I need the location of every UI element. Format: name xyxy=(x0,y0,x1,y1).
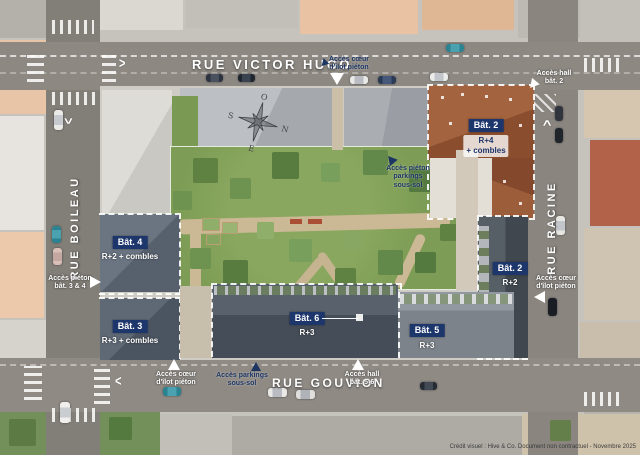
lot-boundary-dashed xyxy=(398,292,400,358)
road-hatching xyxy=(532,94,556,112)
crosswalk xyxy=(584,58,622,72)
access-marker-bottom-hall xyxy=(352,359,364,370)
access-marker-left xyxy=(90,276,101,288)
car xyxy=(60,402,70,423)
direction-arrow-east: > xyxy=(119,56,125,72)
city-block xyxy=(0,232,44,318)
existing-building-roof xyxy=(102,90,172,214)
bat6-leader-marker xyxy=(356,314,363,321)
city-block xyxy=(422,0,514,30)
car xyxy=(52,226,61,243)
bat2-east-floors: R+2 xyxy=(503,278,518,288)
access-line: Accès cœur xyxy=(156,371,196,378)
access-marker-right xyxy=(534,291,545,303)
access-line: Accès piéton xyxy=(386,165,430,172)
car xyxy=(446,44,464,52)
compass-west-label: O xyxy=(260,92,269,102)
bat6-leader-line xyxy=(322,318,358,319)
access-line: Accès parkings xyxy=(216,372,268,379)
access-line: Accès hall xyxy=(345,371,380,378)
car xyxy=(555,128,563,143)
car xyxy=(378,76,396,84)
car xyxy=(296,390,315,399)
bat4-floors: R+2 + combles xyxy=(102,252,158,262)
access-label-bottom-parking: Accès parkings sous-sol xyxy=(216,372,268,389)
bat2-north-floors: R+4 + combles xyxy=(463,135,508,157)
access-label-bottom-hall: Accès hall bât. 5-6 xyxy=(345,371,380,388)
access-label-left-pedestrian: Accès piéton bât. 3 & 4 xyxy=(48,275,92,292)
access-line: bât. 2 xyxy=(545,78,563,85)
bat3-label: Bât. 3 xyxy=(113,320,148,333)
bat4-label: Bât. 4 xyxy=(113,236,148,249)
street-name-rue-boileau: RUE BOILEAU xyxy=(69,176,81,279)
crosswalk xyxy=(52,92,96,105)
aerial-photo: > > > > xyxy=(0,0,640,455)
street-name-rue-racine: RUE RACINE xyxy=(546,181,558,274)
access-line: sous-sol xyxy=(228,380,257,387)
compass-rose: O N E S xyxy=(220,90,296,156)
car xyxy=(163,387,181,396)
floors-line: R+4 xyxy=(479,136,494,145)
bat3-floors: R+3 + combles xyxy=(102,336,158,346)
access-line: bât. 3 & 4 xyxy=(54,283,85,290)
access-line: d'îlot piéton xyxy=(156,379,195,386)
crosswalk xyxy=(52,20,94,34)
access-line: Accès cœur xyxy=(329,56,369,63)
access-line: bât. 5-6 xyxy=(350,379,375,386)
direction-arrow-north: > xyxy=(540,120,556,126)
bat5-floors: R+3 xyxy=(420,341,435,351)
car xyxy=(420,382,437,390)
crosswalk xyxy=(94,364,110,404)
bat2-east-label: Bât. 2 xyxy=(493,262,528,275)
bat6-floors: R+3 xyxy=(300,328,315,338)
access-label-right-pedestrian: Accès cœur d'îlot piéton xyxy=(536,275,576,292)
city-block xyxy=(300,0,418,34)
city-block xyxy=(160,414,232,455)
compass-north-label: N xyxy=(281,124,290,134)
crosswalk xyxy=(52,408,96,422)
city-block xyxy=(590,140,640,226)
site-plan: > > > > xyxy=(0,0,640,470)
compass-south-label: S xyxy=(227,111,234,121)
city-block xyxy=(584,228,640,320)
access-label-top-right-hall: Accès hall bât. 2 xyxy=(537,70,572,87)
access-marker-bottom-left xyxy=(168,359,180,370)
city-block xyxy=(186,0,298,28)
car xyxy=(53,248,62,265)
courtyard-green xyxy=(172,96,198,148)
car xyxy=(555,106,563,121)
floors-line: + combles xyxy=(466,146,505,155)
access-line: parkings xyxy=(393,173,422,180)
access-line: d'îlot piéton xyxy=(536,283,575,290)
access-line: Accès piéton xyxy=(48,275,92,282)
crosswalk xyxy=(27,50,44,82)
bench xyxy=(308,219,322,224)
garden-bed xyxy=(202,218,220,231)
crosswalk xyxy=(102,50,116,82)
city-block xyxy=(0,116,44,230)
access-line: Accès cœur xyxy=(536,275,576,282)
access-path xyxy=(180,286,212,358)
direction-arrow-west: > xyxy=(115,372,121,388)
access-marker-top xyxy=(330,73,344,85)
garden-path xyxy=(190,230,201,288)
car xyxy=(350,76,368,84)
access-marker-parking xyxy=(251,362,261,371)
access-label-garden-parking: Accès piéton parkings sous-sol xyxy=(386,165,430,190)
car xyxy=(54,110,63,130)
roof-terraces xyxy=(400,294,512,304)
garden-bed xyxy=(206,234,221,245)
car xyxy=(206,74,223,82)
car xyxy=(548,298,557,316)
city-block xyxy=(95,0,183,30)
crosswalk xyxy=(24,366,42,400)
bat2-north-label: Bât. 2 xyxy=(469,119,504,132)
bat5-label: Bât. 5 xyxy=(410,324,445,337)
car xyxy=(238,74,255,82)
credit-caption: Crédit visuel : Hive & Co. Document non … xyxy=(450,444,636,450)
access-line: d'îlot piéton xyxy=(329,64,368,71)
bench xyxy=(290,219,302,224)
garden-east-path xyxy=(456,150,478,290)
bat6-label: Bât. 6 xyxy=(290,312,325,325)
access-line: Accès hall xyxy=(537,70,572,77)
garden-bed xyxy=(222,222,238,234)
compass-east-label: E xyxy=(247,144,255,154)
garden-path xyxy=(332,88,343,150)
building-roof xyxy=(344,88,430,146)
crosswalk xyxy=(584,392,622,406)
access-label-bottom-left-pedestrian: Accès cœur d'îlot piéton xyxy=(156,371,196,388)
tree-cluster xyxy=(0,0,1,1)
access-line: sous-sol xyxy=(394,182,423,189)
access-label-top-pedestrian: Accès cœur d'îlot piéton xyxy=(329,56,369,73)
car xyxy=(430,73,448,81)
